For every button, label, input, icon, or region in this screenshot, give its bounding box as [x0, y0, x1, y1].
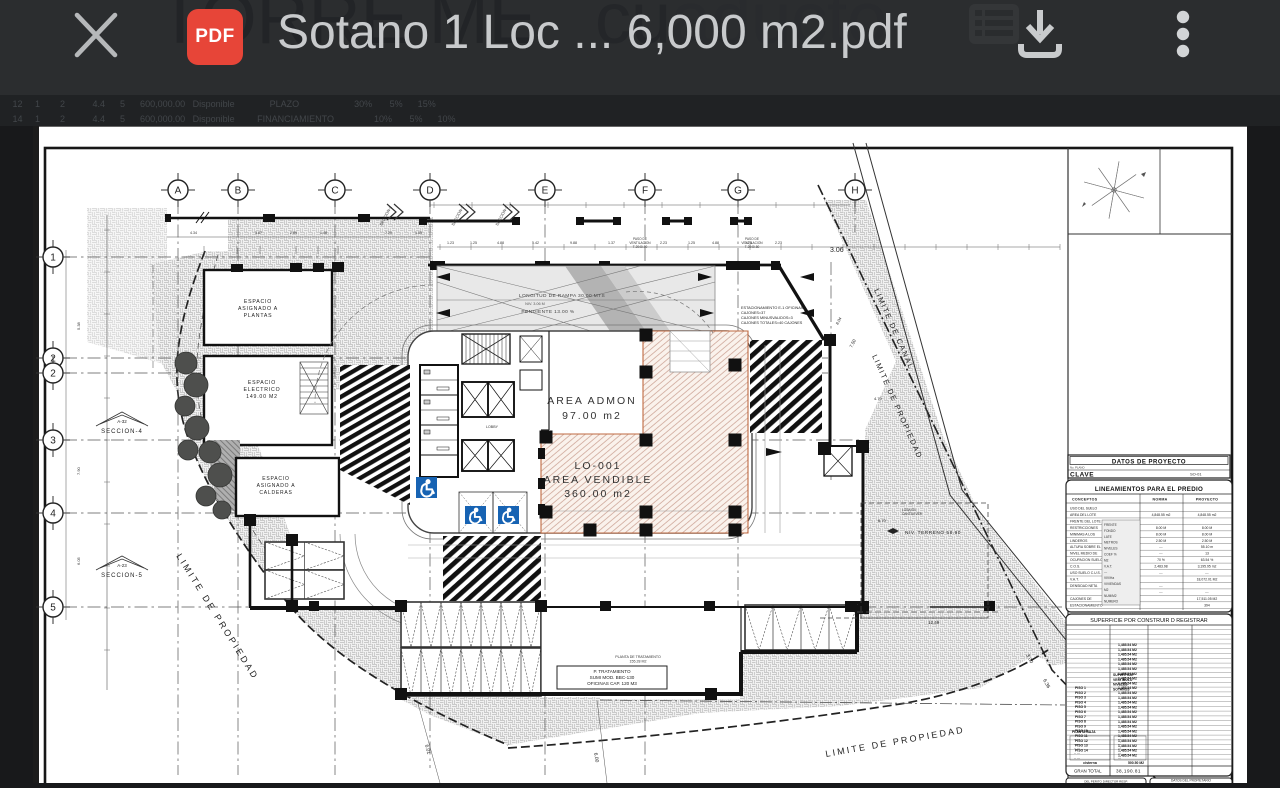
- svg-text:2,483.98: 2,483.98: [1154, 565, 1167, 569]
- svg-text:AREA ADMON: AREA ADMON: [547, 395, 636, 407]
- svg-text:H: H: [851, 186, 858, 197]
- svg-text:ASIGNADO A: ASIGNADO A: [238, 306, 278, 312]
- svg-text:155.28 M2: 155.28 M2: [630, 660, 647, 664]
- svg-text:1,485.54 M2: 1,485.54 M2: [1118, 657, 1137, 661]
- svg-text:PENDIENTE 13.00 %: PENDIENTE 13.00 %: [521, 309, 575, 315]
- svg-text:T-2040-80: T-2040-80: [633, 245, 648, 249]
- svg-text:55.10 m: 55.10 m: [1201, 545, 1213, 549]
- svg-text:NUMERO: NUMERO: [1104, 600, 1119, 604]
- svg-text:---: ---: [1118, 742, 1121, 746]
- svg-text:CAJONES=37: CAJONES=37: [741, 311, 765, 315]
- svg-text:SECCION-4: SECCION-4: [101, 429, 143, 435]
- svg-text:4: 4: [50, 509, 56, 520]
- svg-text:CALDERAS: CALDERAS: [259, 490, 292, 496]
- svg-text:A-32: A-32: [117, 419, 127, 424]
- svg-text:G: G: [734, 186, 742, 197]
- svg-text:63.54 %: 63.54 %: [1201, 558, 1213, 562]
- svg-text:SO-01: SO-01: [1190, 472, 1202, 477]
- svg-text:LOBBY: LOBBY: [486, 425, 499, 429]
- svg-text:4,848.55 m2: 4,848.55 m2: [1198, 513, 1217, 517]
- svg-text:ASIGNADO A: ASIGNADO A: [257, 483, 296, 489]
- svg-text:-- ---: -- ---: [1074, 751, 1080, 755]
- svg-text:OCUPACION SUELO: OCUPACION SUELO: [1070, 558, 1103, 562]
- svg-text:1,485.54 M2: 1,485.54 M2: [1118, 677, 1137, 681]
- svg-text:7.20: 7.20: [385, 231, 392, 235]
- svg-text:A-23: A-23: [117, 563, 127, 568]
- svg-text:2.23: 2.23: [660, 241, 667, 245]
- svg-text:NIV. 3.06 M: NIV. 3.06 M: [525, 302, 545, 306]
- svg-text:---: ---: [1205, 571, 1208, 575]
- svg-text:1,485.54 M2: 1,485.54 M2: [1118, 653, 1137, 657]
- svg-text:SUPERFICIE POR CONSTRUIR D: SUPERFICIE POR CONSTRUIR D REGISTRAR: [1090, 618, 1208, 624]
- svg-text:DENSIDAD NETA: DENSIDAD NETA: [1070, 584, 1098, 588]
- svg-text:PISO 7: PISO 7: [1075, 715, 1086, 719]
- svg-text:6.05: 6.05: [76, 556, 81, 565]
- svg-text:1: 1: [50, 253, 56, 264]
- svg-text:1,485.54 M2: 1,485.54 M2: [1118, 725, 1137, 729]
- svg-text:CAJONES TOTALES=40 CAJONES: CAJONES TOTALES=40 CAJONES: [741, 321, 803, 325]
- svg-text:5: 5: [50, 603, 56, 614]
- svg-text:1,485.54 M2: 1,485.54 M2: [1118, 643, 1137, 647]
- svg-text:500.50 M2: 500.50 M2: [1128, 761, 1144, 765]
- svg-text:cisterna: cisterna: [1083, 761, 1098, 765]
- svg-text:PISO 4: PISO 4: [1075, 700, 1086, 704]
- svg-text:2.50 M: 2.50 M: [1202, 539, 1213, 543]
- svg-text:1.55: 1.55: [415, 231, 422, 235]
- svg-text:---: ---: [1159, 552, 1162, 556]
- svg-text:PISO 8: PISO 8: [1075, 720, 1086, 724]
- svg-text:NUM/M2: NUM/M2: [1104, 594, 1117, 598]
- svg-text:394: 394: [1204, 603, 1210, 607]
- svg-text:-- ---: -- ---: [1074, 756, 1080, 760]
- svg-text:D: D: [426, 186, 433, 197]
- svg-text:2.89: 2.89: [290, 231, 297, 235]
- svg-text:1.37: 1.37: [608, 241, 615, 245]
- svg-text:NIV. TERRENO 58.90: NIV. TERRENO 58.90: [905, 530, 961, 536]
- svg-text:NORMA: NORMA: [1152, 498, 1167, 502]
- svg-text:PLANTA BAJA: PLANTA BAJA: [1072, 730, 1096, 734]
- svg-text:-- ---: -- ---: [1074, 737, 1080, 741]
- svg-text:8.00 M: 8.00 M: [1156, 532, 1167, 536]
- svg-text:LONGITUD DE RAMPA 30.00 MTS: LONGITUD DE RAMPA 30.00 MTS: [519, 293, 605, 299]
- svg-text:3.87: 3.87: [255, 231, 262, 235]
- svg-text:3.06: 3.06: [830, 247, 844, 254]
- svg-text:38,190.81: 38,190.81: [1116, 769, 1141, 774]
- svg-text:PISO 3: PISO 3: [1075, 696, 1086, 700]
- svg-text:M2: M2: [1104, 558, 1109, 562]
- svg-text:MINIMAS A LOS: MINIMAS A LOS: [1070, 532, 1096, 536]
- svg-text:3: 3: [50, 436, 56, 447]
- svg-text:NIVELES: NIVELES: [1104, 547, 1117, 551]
- svg-text:No. PLANO: No. PLANO: [1070, 466, 1085, 470]
- svg-text:3,195.95 m2: 3,195.95 m2: [1198, 565, 1217, 569]
- svg-text:T-2040-80: T-2040-80: [745, 245, 760, 249]
- svg-text:5.42: 5.42: [532, 241, 539, 245]
- svg-text:AREA DEL LOTE: AREA DEL LOTE: [1070, 513, 1097, 517]
- svg-text:17,511.05 M2: 17,511.05 M2: [1197, 597, 1218, 601]
- svg-text:PISO 9: PISO 9: [1075, 724, 1086, 728]
- svg-text:LATE: LATE: [1104, 535, 1112, 539]
- svg-text:VIVIENDAS: VIVIENDAS: [1104, 582, 1121, 586]
- svg-text:LO-001: LO-001: [574, 460, 621, 472]
- svg-text:13: 13: [1205, 552, 1209, 556]
- svg-text:1,485.54 M2: 1,485.54 M2: [1118, 648, 1137, 652]
- svg-text:FRENTE: FRENTE: [1104, 523, 1117, 527]
- svg-text:V.A.T.: V.A.T.: [1104, 564, 1112, 568]
- svg-text:1,485.54 M2: 1,485.54 M2: [1118, 715, 1137, 719]
- svg-text:M2: M2: [1104, 588, 1109, 592]
- svg-text:8.00 M: 8.00 M: [1202, 532, 1213, 536]
- svg-text:1,485.54 M2: 1,485.54 M2: [1118, 672, 1137, 676]
- svg-text:LINEAMIENTOS PARA EL PREDIO: LINEAMIENTOS PARA EL PREDIO: [1095, 486, 1203, 493]
- svg-text:CLAVE: CLAVE: [1070, 472, 1094, 479]
- svg-text:97.00 m2: 97.00 m2: [562, 410, 622, 422]
- svg-text:9.88: 9.88: [570, 241, 577, 245]
- svg-text:---: ---: [1118, 756, 1121, 760]
- svg-text:ESPACIO: ESPACIO: [244, 299, 272, 305]
- svg-text:GRAN TOTAL: GRAN TOTAL: [1074, 769, 1102, 774]
- svg-text:ESPACIO: ESPACIO: [248, 380, 276, 386]
- svg-text:2: 2: [50, 369, 56, 380]
- svg-text:CAJONES MINUSVALIDOS=3: CAJONES MINUSVALIDOS=3: [741, 316, 793, 320]
- svg-text:8.00 M: 8.00 M: [1202, 526, 1213, 530]
- svg-text:LINDEROS: LINDEROS: [1070, 539, 1088, 543]
- svg-text:-- ---: -- ---: [1074, 742, 1080, 746]
- svg-text:1,485.54 M2: 1,485.54 M2: [1118, 705, 1137, 709]
- svg-text:PISO 1: PISO 1: [1075, 686, 1086, 690]
- svg-text:DEL PERITO DIRECTOR RESP.: DEL PERITO DIRECTOR RESP.: [1084, 780, 1128, 784]
- svg-text:---: ---: [1159, 545, 1162, 549]
- svg-text:C.O.S.: C.O.S.: [1070, 565, 1080, 569]
- svg-text:4.88: 4.88: [497, 241, 504, 245]
- svg-text:---: ---: [1118, 751, 1121, 755]
- svg-text:SECCION-5: SECCION-5: [101, 573, 143, 579]
- svg-text:---: ---: [1118, 747, 1121, 751]
- svg-text:149.00 M2: 149.00 M2: [246, 394, 278, 400]
- svg-text:ESTACIONAMIENTO: ESTACIONAMIENTO: [1070, 603, 1103, 607]
- svg-text:FONDO: FONDO: [1104, 529, 1116, 533]
- svg-text:AREA VENDIBLE: AREA VENDIBLE: [544, 474, 653, 486]
- svg-text:PLANTAS: PLANTAS: [244, 313, 273, 319]
- svg-text:12.49: 12.49: [928, 620, 940, 625]
- svg-text:OFICINAS CAP. 120 M3: OFICINAS CAP. 120 M3: [587, 681, 637, 686]
- svg-text:4.88: 4.88: [712, 241, 719, 245]
- svg-text:1,485.54 M2: 1,485.54 M2: [1118, 686, 1137, 690]
- svg-text:FRENTE DEL LOTE: FRENTE DEL LOTE: [1070, 519, 1102, 523]
- svg-text:PISO 6: PISO 6: [1075, 710, 1086, 714]
- svg-text:-- ---: -- ---: [1074, 747, 1080, 751]
- svg-text:PISO 5: PISO 5: [1075, 705, 1086, 709]
- svg-text:---: ---: [1159, 571, 1162, 575]
- svg-text:C: C: [331, 186, 338, 197]
- svg-text:4.34: 4.34: [190, 231, 197, 235]
- svg-text:RESTRICCIONES: RESTRICCIONES: [1070, 526, 1099, 530]
- svg-text:---: ---: [1159, 590, 1162, 594]
- svg-text:7.90: 7.90: [76, 466, 81, 475]
- svg-text:B: B: [235, 186, 242, 197]
- svg-text:---: ---: [1118, 737, 1121, 741]
- svg-text:ESTACIONAMIENTO E-1 OFICINAS: ESTACIONAMIENTO E-1 OFICINAS: [741, 306, 804, 310]
- svg-text:1,485.54 M2: 1,485.54 M2: [1118, 662, 1137, 666]
- svg-text:5.38: 5.38: [76, 321, 81, 330]
- svg-text:ALTURA SOBRE EL: ALTURA SOBRE EL: [1070, 545, 1101, 549]
- svg-text:CANTILEVER: CANTILEVER: [902, 512, 923, 516]
- svg-text:SUMI MOD. BBC-130: SUMI MOD. BBC-130: [590, 675, 635, 680]
- svg-text:DATOS DE PROYECTO: DATOS DE PROYECTO: [1112, 460, 1186, 466]
- svg-text:COEF %: COEF %: [1104, 553, 1117, 557]
- svg-text:---: ---: [1159, 584, 1162, 588]
- svg-text:1.48: 1.48: [320, 231, 327, 235]
- svg-text:1.25: 1.25: [470, 241, 477, 245]
- svg-text:1,485.54 M2: 1,485.54 M2: [1118, 681, 1137, 685]
- svg-text:ELECTRICO: ELECTRICO: [244, 387, 281, 393]
- svg-text:1.23: 1.23: [447, 241, 454, 245]
- svg-text:70 %: 70 %: [1157, 558, 1165, 562]
- svg-text:F: F: [642, 186, 648, 197]
- svg-text:360.00 m2: 360.00 m2: [564, 488, 632, 500]
- svg-text:1,485.54 M2: 1,485.54 M2: [1118, 696, 1137, 700]
- svg-text:CONCEPTOS: CONCEPTOS: [1072, 498, 1098, 502]
- svg-text:V.A.T.: V.A.T.: [1070, 577, 1079, 581]
- svg-text:ESPACIO: ESPACIO: [262, 476, 289, 482]
- svg-text:4.70: 4.70: [874, 396, 883, 401]
- svg-text:USO DEL SUELO: USO DEL SUELO: [1070, 507, 1098, 511]
- svg-text:METROS: METROS: [1104, 541, 1118, 545]
- svg-text:NIVEL MEDIO DE: NIVEL MEDIO DE: [1070, 552, 1098, 556]
- svg-text:E: E: [542, 186, 549, 197]
- svg-text:1,485.54 M2: 1,485.54 M2: [1118, 710, 1137, 714]
- svg-text:1.25: 1.25: [688, 241, 695, 245]
- svg-text:1,485.54 M2: 1,485.54 M2: [1118, 720, 1137, 724]
- svg-text:2.23: 2.23: [775, 241, 782, 245]
- svg-text:P. TRATAMIENTO: P. TRATAMIENTO: [593, 669, 631, 674]
- svg-text:8.00 M: 8.00 M: [1156, 526, 1167, 530]
- svg-text:1,485.54 M2: 1,485.54 M2: [1118, 729, 1137, 733]
- svg-text:1,485.54 M2: 1,485.54 M2: [1118, 691, 1137, 695]
- svg-text:PROYECTO: PROYECTO: [1196, 498, 1219, 502]
- svg-text:2.50 M: 2.50 M: [1156, 539, 1167, 543]
- svg-text:1,485.54 M2: 1,485.54 M2: [1118, 701, 1137, 705]
- svg-text:---: ---: [1205, 590, 1208, 594]
- svg-text:A: A: [175, 186, 182, 197]
- svg-text:USO SUELO C.U.S.: USO SUELO C.U.S.: [1070, 571, 1101, 575]
- svg-text:18,072.01 M2: 18,072.01 M2: [1197, 577, 1218, 581]
- svg-text:CAJONES DE: CAJONES DE: [1070, 597, 1092, 601]
- svg-text:---: ---: [1104, 570, 1107, 574]
- svg-text:6.70: 6.70: [878, 518, 887, 523]
- svg-text:DATOS DEL PROPIETARIO: DATOS DEL PROPIETARIO: [1171, 779, 1212, 783]
- svg-text:1,485.54 M2: 1,485.54 M2: [1118, 667, 1137, 671]
- svg-text:PISO 2: PISO 2: [1075, 691, 1086, 695]
- svg-text:PLANTA DE TRATAMIENTO: PLANTA DE TRATAMIENTO: [615, 655, 661, 659]
- svg-text:4,848.55 m2: 4,848.55 m2: [1152, 513, 1171, 517]
- svg-text:VIV/Ha: VIV/Ha: [1104, 576, 1114, 580]
